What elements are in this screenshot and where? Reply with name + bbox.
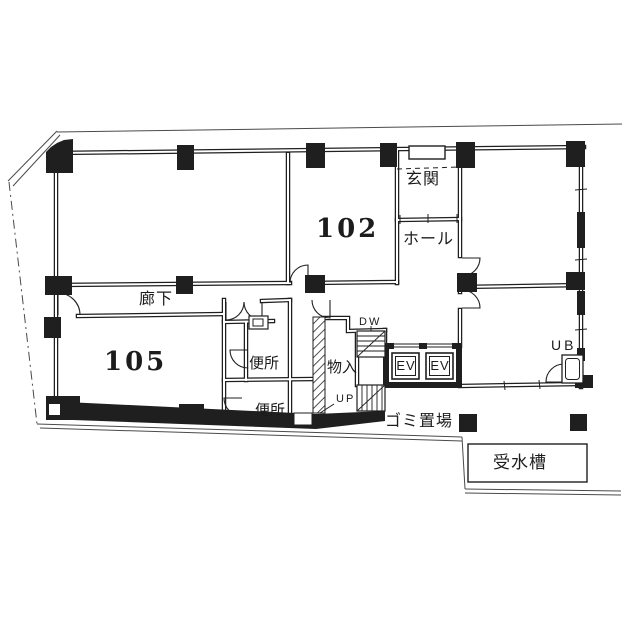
label-unit-bath: UB: [551, 338, 576, 352]
door-hall-to-lower-right-room: [462, 290, 480, 308]
door-corridor-west: [58, 293, 80, 315]
door-lobby-passage: [312, 300, 330, 318]
label-toilet-lower: 便所: [255, 404, 285, 419]
corner-notch: [49, 404, 60, 415]
floor-plan-page: 102 105 玄関 ホール 廊下 便所 便所 物入 DW UP EV EV U…: [0, 0, 630, 630]
toilet-sink-fixture: [249, 316, 268, 329]
corner-column-stepped: [46, 139, 73, 173]
floor-plan-drawing: [0, 0, 630, 630]
south-wall-fixture: [294, 413, 312, 425]
label-elevator-1: EV: [394, 359, 418, 372]
label-entrance: 玄関: [406, 172, 440, 188]
unit-bath-fixture: [562, 355, 583, 383]
label-stairs-down: DW: [359, 317, 381, 328]
storage-hatched-wall: [313, 317, 325, 413]
door-unit-bath: [546, 364, 564, 382]
label-storage: 物入: [327, 361, 357, 376]
door-toilet-vestibule-left: [226, 302, 244, 320]
label-stairs-up: UP: [336, 394, 355, 405]
stairs-down: [357, 326, 385, 357]
room-label-102: 102: [316, 216, 379, 242]
solid-walls: [46, 396, 385, 429]
label-corridor: 廊下: [139, 292, 173, 308]
label-elevator-2: EV: [428, 359, 452, 372]
label-toilet-upper: 便所: [249, 357, 279, 372]
room-label-105: 105: [104, 349, 167, 375]
label-garbage-area: ゴミ置場: [385, 414, 453, 430]
label-hall: ホール: [403, 232, 454, 248]
stairs-up: [357, 385, 385, 411]
label-water-tank: 受水槽: [493, 454, 547, 471]
